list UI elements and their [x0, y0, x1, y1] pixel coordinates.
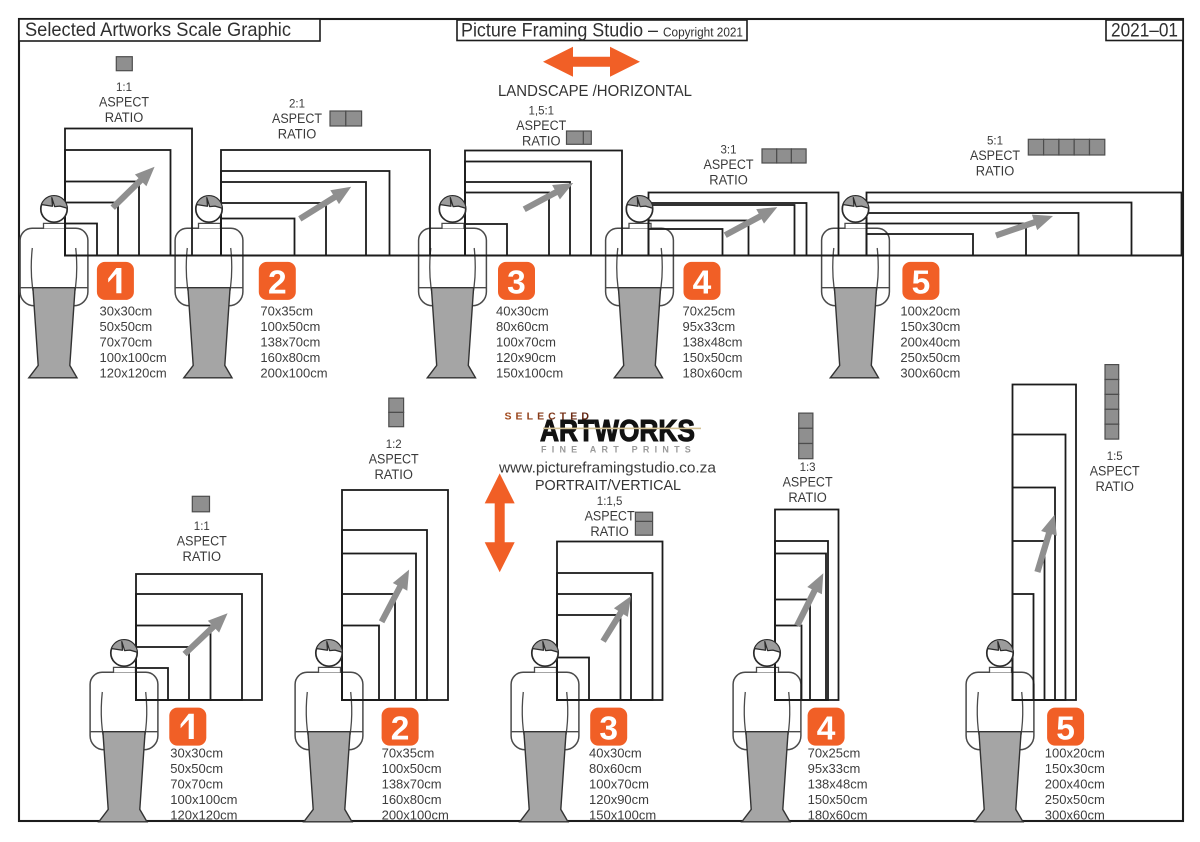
- svg-text:200x100cm: 200x100cm: [260, 365, 327, 380]
- svg-text:4: 4: [693, 265, 712, 302]
- svg-text:ASPECT: ASPECT: [970, 148, 1020, 163]
- svg-text:3: 3: [599, 710, 618, 747]
- svg-text:250x50cm: 250x50cm: [900, 350, 960, 365]
- svg-text:150x50cm: 150x50cm: [808, 792, 868, 807]
- svg-text:ASPECT: ASPECT: [516, 118, 566, 133]
- svg-text:100x70cm: 100x70cm: [589, 776, 649, 791]
- svg-text:LANDSCAPE /HORIZONTAL: LANDSCAPE /HORIZONTAL: [498, 83, 692, 100]
- svg-text:70x35cm: 70x35cm: [260, 303, 313, 318]
- svg-text:70x25cm: 70x25cm: [808, 745, 861, 760]
- svg-text:1:1,5: 1:1,5: [597, 496, 623, 508]
- svg-text:RATIO: RATIO: [1095, 479, 1134, 494]
- svg-text:120x90cm: 120x90cm: [589, 792, 649, 807]
- svg-text:1:2: 1:2: [386, 439, 402, 451]
- svg-text:200x100cm: 200x100cm: [382, 807, 449, 822]
- svg-text:40x30cm: 40x30cm: [496, 303, 549, 318]
- svg-text:50x50cm: 50x50cm: [100, 319, 153, 334]
- svg-text:100x20cm: 100x20cm: [900, 303, 960, 318]
- svg-text:RATIO: RATIO: [709, 173, 748, 188]
- svg-text:ASPECT: ASPECT: [177, 534, 227, 549]
- svg-text:1,5:1: 1,5:1: [529, 106, 555, 118]
- svg-text:200x40cm: 200x40cm: [1045, 776, 1105, 791]
- svg-text:40x30cm: 40x30cm: [589, 745, 642, 760]
- svg-text:300x60cm: 300x60cm: [1045, 807, 1105, 822]
- svg-text:1:3: 1:3: [800, 462, 816, 474]
- svg-text:150x30cm: 150x30cm: [1045, 761, 1105, 776]
- svg-text:Copyright 2021: Copyright 2021: [663, 25, 743, 40]
- svg-text:150x30cm: 150x30cm: [900, 319, 960, 334]
- svg-text:200x40cm: 200x40cm: [900, 334, 960, 349]
- svg-text:160x80cm: 160x80cm: [382, 792, 442, 807]
- svg-text:120x120cm: 120x120cm: [170, 807, 237, 822]
- svg-text:ASPECT: ASPECT: [369, 452, 419, 467]
- svg-text:80x60cm: 80x60cm: [589, 761, 642, 776]
- svg-text:5:1: 5:1: [987, 136, 1003, 148]
- svg-text:30x30cm: 30x30cm: [170, 745, 223, 760]
- svg-text:100x100cm: 100x100cm: [170, 792, 237, 807]
- svg-text:Selected Artworks Scale Graphi: Selected Artworks Scale Graphic: [25, 19, 291, 41]
- svg-text:138x70cm: 138x70cm: [382, 776, 442, 791]
- svg-text:Picture Framing Studio –: Picture Framing Studio –: [461, 21, 658, 42]
- svg-text:80x60cm: 80x60cm: [496, 319, 549, 334]
- svg-text:RATIO: RATIO: [522, 134, 561, 149]
- svg-text:ASPECT: ASPECT: [704, 157, 754, 172]
- svg-text:ASPECT: ASPECT: [783, 475, 833, 490]
- svg-text:RATIO: RATIO: [105, 110, 144, 125]
- svg-text:RATIO: RATIO: [788, 490, 827, 505]
- svg-text:4: 4: [817, 710, 836, 747]
- svg-text:RATIO: RATIO: [183, 549, 222, 564]
- svg-text:100x20cm: 100x20cm: [1045, 745, 1105, 760]
- svg-text:ASPECT: ASPECT: [1090, 464, 1140, 479]
- svg-text:120x120cm: 120x120cm: [100, 365, 167, 380]
- svg-text:70x25cm: 70x25cm: [683, 303, 736, 318]
- svg-text:5: 5: [1056, 710, 1075, 747]
- svg-text:138x70cm: 138x70cm: [260, 334, 320, 349]
- svg-text:1:1: 1:1: [194, 521, 210, 533]
- svg-text:2: 2: [268, 265, 287, 302]
- svg-text:100x50cm: 100x50cm: [382, 761, 442, 776]
- svg-text:RATIO: RATIO: [590, 524, 629, 539]
- svg-text:300x60cm: 300x60cm: [900, 365, 960, 380]
- svg-text:RATIO: RATIO: [976, 164, 1015, 179]
- svg-text:5: 5: [912, 265, 931, 302]
- svg-text:100x70cm: 100x70cm: [496, 334, 556, 349]
- svg-text:100x100cm: 100x100cm: [100, 350, 167, 365]
- svg-text:3: 3: [507, 265, 526, 302]
- svg-text:250x50cm: 250x50cm: [1045, 792, 1105, 807]
- svg-text:50x50cm: 50x50cm: [170, 761, 223, 776]
- svg-text:30x30cm: 30x30cm: [100, 303, 153, 318]
- svg-text:www.pictureframingstudio.co.za: www.pictureframingstudio.co.za: [498, 460, 717, 477]
- svg-text:RATIO: RATIO: [374, 467, 413, 482]
- svg-text:ASPECT: ASPECT: [272, 111, 322, 126]
- svg-text:3:1: 3:1: [721, 145, 737, 157]
- svg-text:ASPECT: ASPECT: [99, 95, 149, 110]
- svg-text:120x90cm: 120x90cm: [496, 350, 556, 365]
- svg-text:2: 2: [391, 710, 410, 747]
- svg-text:1:5: 1:5: [1107, 451, 1123, 463]
- svg-text:ASPECT: ASPECT: [585, 509, 635, 524]
- svg-text:150x100cm: 150x100cm: [589, 807, 656, 822]
- svg-text:150x50cm: 150x50cm: [683, 350, 743, 365]
- svg-text:180x60cm: 180x60cm: [808, 807, 868, 822]
- svg-text:180x60cm: 180x60cm: [683, 365, 743, 380]
- svg-text:160x80cm: 160x80cm: [260, 350, 320, 365]
- svg-text:138x48cm: 138x48cm: [808, 776, 868, 791]
- svg-text:95x33cm: 95x33cm: [683, 319, 736, 334]
- svg-text:100x50cm: 100x50cm: [260, 319, 320, 334]
- svg-text:ARTWORKS: ARTWORKS: [540, 413, 695, 448]
- svg-text:70x70cm: 70x70cm: [100, 334, 153, 349]
- svg-text:2021–01: 2021–01: [1111, 21, 1178, 42]
- svg-text:2:1: 2:1: [289, 99, 305, 111]
- svg-text:138x48cm: 138x48cm: [683, 334, 743, 349]
- svg-text:RATIO: RATIO: [278, 127, 317, 142]
- svg-text:95x33cm: 95x33cm: [808, 761, 861, 776]
- svg-text:150x100cm: 150x100cm: [496, 365, 563, 380]
- svg-text:1:1: 1:1: [116, 82, 132, 94]
- svg-text:PORTRAIT/VERTICAL: PORTRAIT/VERTICAL: [535, 477, 681, 494]
- svg-text:70x70cm: 70x70cm: [170, 776, 223, 791]
- svg-text:FINE ART PRINTS: FINE ART PRINTS: [541, 444, 697, 454]
- svg-text:70x35cm: 70x35cm: [382, 745, 435, 760]
